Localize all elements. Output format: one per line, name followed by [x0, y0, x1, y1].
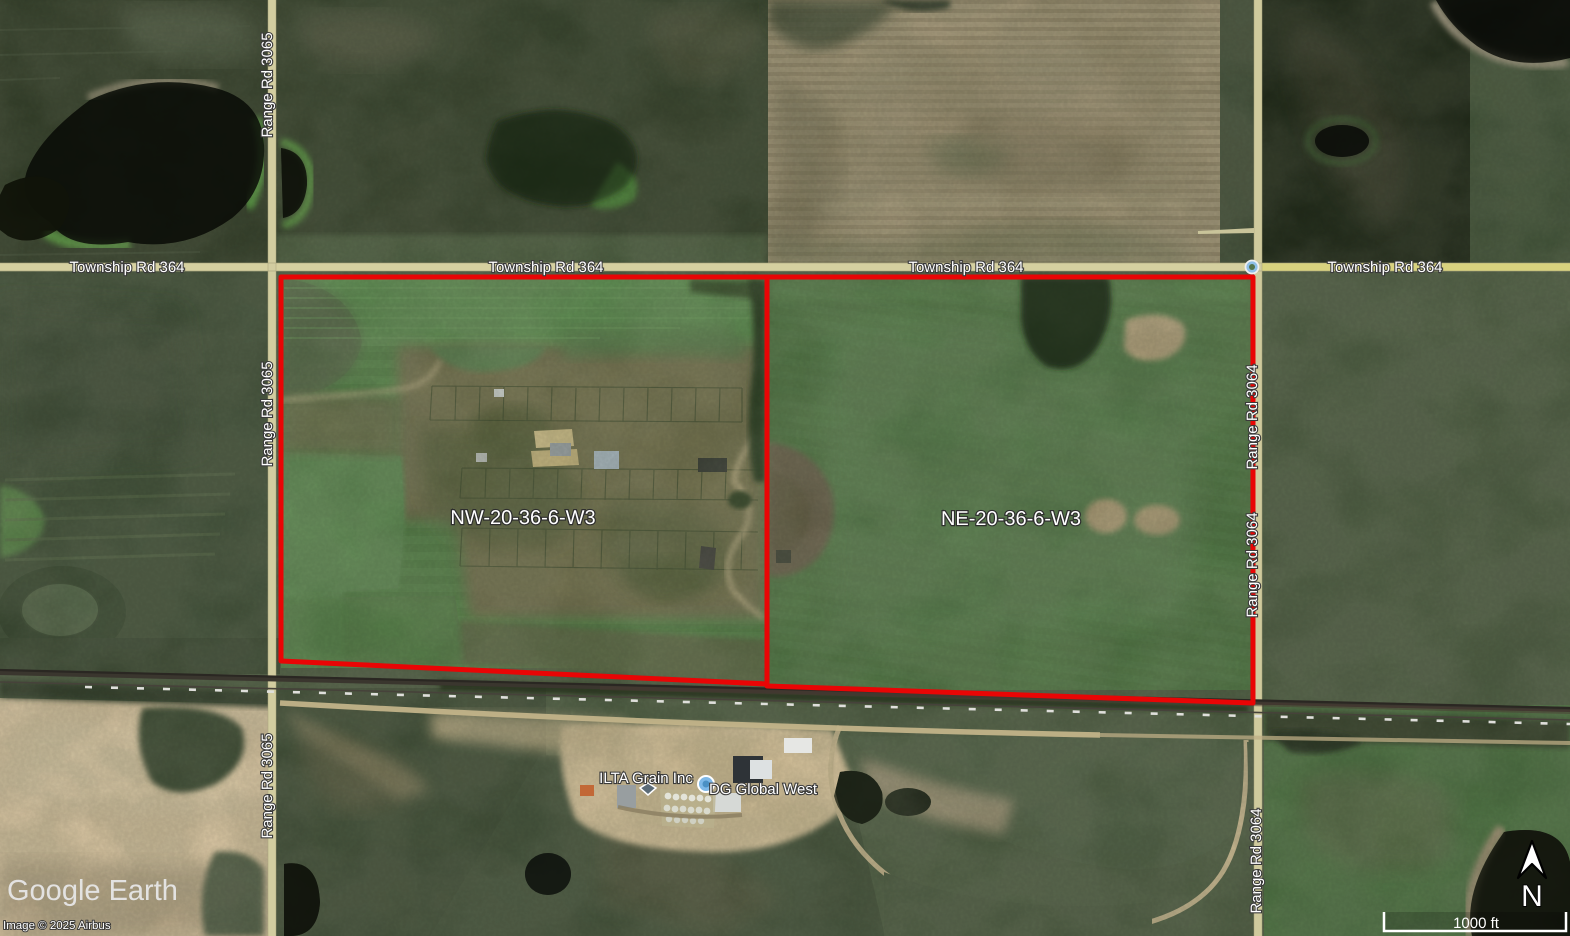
svg-text:DG Global West: DG Global West [709, 781, 818, 798]
svg-text:Google Earth: Google Earth [7, 875, 178, 907]
svg-text:N: N [1521, 880, 1543, 913]
svg-text:ILTA Grain Inc: ILTA Grain Inc [599, 770, 693, 787]
svg-text:Township Rd 364: Township Rd 364 [69, 259, 184, 276]
svg-text:Range Rd 3064: Range Rd 3064 [1248, 808, 1265, 913]
svg-text:Range Rd 3065: Range Rd 3065 [259, 361, 276, 466]
svg-text:1000 ft: 1000 ft [1453, 915, 1500, 932]
svg-text:NW-20-36-6-W3: NW-20-36-6-W3 [450, 507, 595, 529]
svg-text:Image © 2025 Airbus: Image © 2025 Airbus [3, 920, 111, 932]
svg-text:Range Rd 3065: Range Rd 3065 [259, 733, 276, 838]
svg-text:Range Rd 3065: Range Rd 3065 [259, 32, 276, 137]
svg-text:Township Rd 364: Township Rd 364 [908, 259, 1023, 276]
svg-text:NE-20-36-6-W3: NE-20-36-6-W3 [941, 508, 1081, 530]
svg-text:Township Rd 364: Township Rd 364 [1327, 259, 1442, 276]
svg-text:Range Rd 3064: Range Rd 3064 [1244, 364, 1261, 469]
svg-text:Range Rd 3064: Range Rd 3064 [1244, 512, 1261, 617]
svg-text:Township Rd 364: Township Rd 364 [488, 259, 603, 276]
